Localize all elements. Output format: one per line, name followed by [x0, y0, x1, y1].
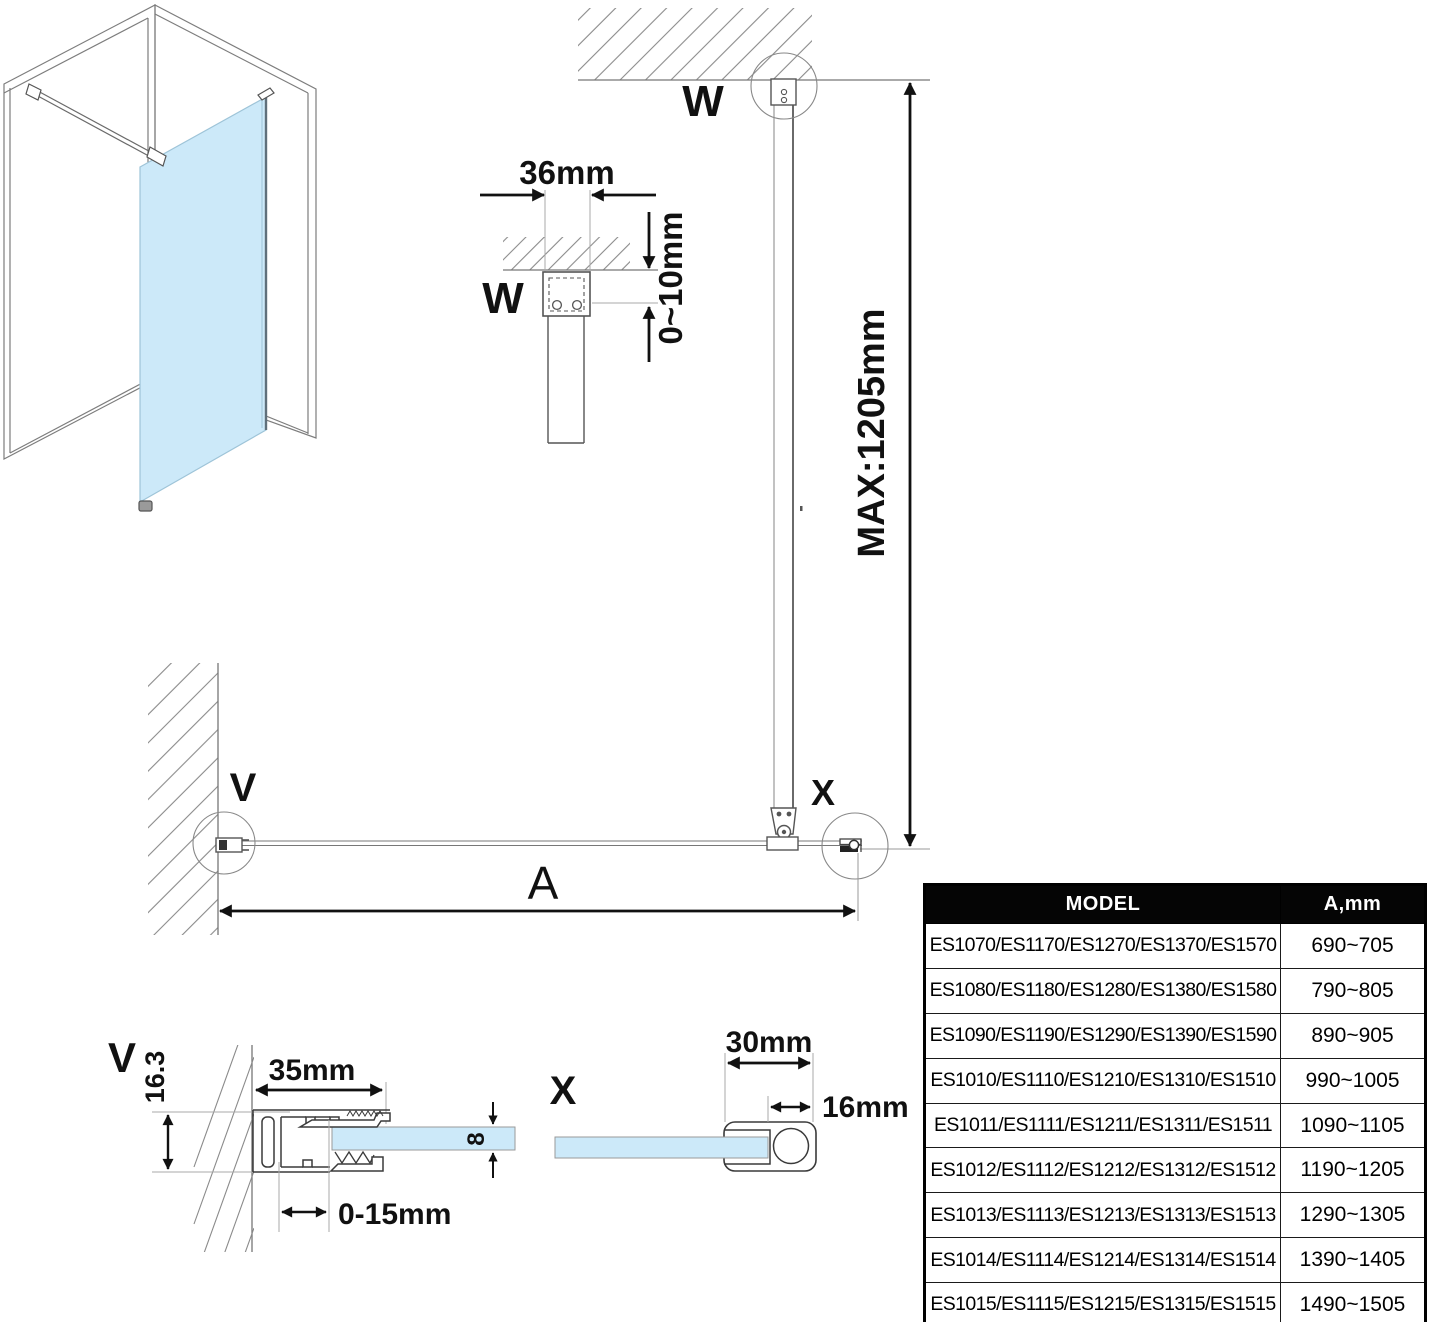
support-bar-iso [26, 84, 166, 166]
dim-0-15mm-label: 0-15mm [338, 1198, 451, 1231]
bar-hinge [767, 808, 798, 850]
table-row: ES1090/ES1190/ES1290/ES1390/ES1590 890~9… [925, 1013, 1426, 1058]
dim-8-label: 8 [463, 1132, 490, 1145]
glass-bottom-foot-iso [139, 501, 152, 511]
elevation-view: W MAX:1205mm [578, 8, 930, 849]
bar-tick [800, 506, 803, 511]
section-x-label: X [550, 1069, 577, 1113]
dim-16mm-label: 16mm [822, 1091, 909, 1124]
elevation-w-label: W [682, 77, 724, 126]
section-v: V 16.3 35mm [108, 1000, 515, 1322]
left-wall [4, 5, 155, 459]
model-cell: ES1080/ES1180/ES1280/ES1380/ES1580 [925, 968, 1281, 1013]
range-cell: 1090~1105 [1281, 1103, 1426, 1148]
dim-16-3-label: 16.3 [140, 1051, 170, 1104]
model-cell: ES1070/ES1170/ES1270/ES1370/ES1570 [925, 924, 1281, 969]
table-row: ES1013/ES1113/ES1213/ES1313/ES1513 1290~… [925, 1193, 1426, 1238]
range-cell: 990~1005 [1281, 1058, 1426, 1103]
technical-drawing-page: 36mm W 0~10mm [0, 0, 1430, 1322]
table-row: ES1014/ES1114/ES1214/ES1314/ES1514 1390~… [925, 1238, 1426, 1283]
ceiling-hatch [503, 237, 630, 270]
ceiling-bracket-detail [543, 272, 590, 316]
dim-35mm-label: 35mm [269, 1054, 356, 1087]
model-cell: ES1012/ES1112/ES1212/ES1312/ES1512 [925, 1148, 1281, 1193]
header-model: MODEL [925, 885, 1281, 924]
model-cell: ES1015/ES1115/ES1215/ES1315/ES1515 [925, 1283, 1281, 1322]
model-cell: ES1010/ES1110/ES1210/ES1310/ES1510 [925, 1058, 1281, 1103]
dim-36mm-label: 36mm [519, 154, 614, 191]
dim-max-label: MAX:1205mm [851, 308, 893, 557]
plan-x-label: X [811, 772, 835, 813]
ceiling-hatch-main [578, 8, 812, 80]
table-row: ES1010/ES1110/ES1210/ES1310/ES1510 990~1… [925, 1058, 1426, 1103]
dim-a-label: A [528, 857, 559, 909]
table-header-row: MODEL A,mm [925, 885, 1426, 924]
dim-0-10mm-label: 0~10mm [652, 211, 689, 344]
plan-v-label: V [230, 766, 257, 810]
detail-w-enlarged: 36mm W 0~10mm [480, 154, 689, 443]
table-row: ES1070/ES1170/ES1270/ES1370/ES1570 690~7… [925, 924, 1426, 969]
model-cell: ES1090/ES1190/ES1290/ES1390/ES1590 [925, 1013, 1281, 1058]
range-cell: 890~905 [1281, 1013, 1426, 1058]
range-cell: 1390~1405 [1281, 1238, 1426, 1283]
glass-section-right [555, 1137, 768, 1158]
table-row: ES1080/ES1180/ES1280/ES1380/ES1580 790~8… [925, 968, 1426, 1013]
table-row: ES1011/ES1111/ES1211/ES1311/ES1511 1090~… [925, 1103, 1426, 1148]
section-v-label: V [108, 1034, 136, 1081]
dim-30mm-label: 30mm [726, 1026, 813, 1059]
table-row: ES1012/ES1112/ES1212/ES1312/ES1512 1190~… [925, 1148, 1426, 1193]
section-v-wall-hatch [194, 1000, 254, 1322]
range-cell: 790~805 [1281, 968, 1426, 1013]
table-row: ES1015/ES1115/ES1215/ES1315/ES1515 1490~… [925, 1283, 1426, 1322]
glass-top-bracket-iso [258, 88, 274, 100]
header-a-mm: A,mm [1281, 885, 1426, 924]
plan-view: V X A [148, 663, 888, 935]
wall-hatch [148, 663, 218, 935]
ceiling-bracket-elevation [771, 79, 796, 105]
model-table: MODEL A,mm ES1070/ES1170/ES1270/ES1370/E… [923, 883, 1427, 1322]
support-bar-elevation [774, 105, 803, 808]
range-cell: 1190~1205 [1281, 1148, 1426, 1193]
section-x: X 30mm 16mm [550, 1026, 909, 1171]
support-bar-detail [548, 316, 584, 443]
range-cell: 1290~1305 [1281, 1193, 1426, 1238]
isometric-view [4, 5, 316, 511]
detail-w-label: W [482, 274, 524, 323]
range-cell: 1490~1505 [1281, 1283, 1426, 1322]
model-cell: ES1011/ES1111/ES1211/ES1311/ES1511 [925, 1103, 1281, 1148]
model-cell: ES1014/ES1114/ES1214/ES1314/ES1514 [925, 1238, 1281, 1283]
range-cell: 690~705 [1281, 924, 1426, 969]
model-cell: ES1013/ES1113/ES1213/ES1313/ES1513 [925, 1193, 1281, 1238]
